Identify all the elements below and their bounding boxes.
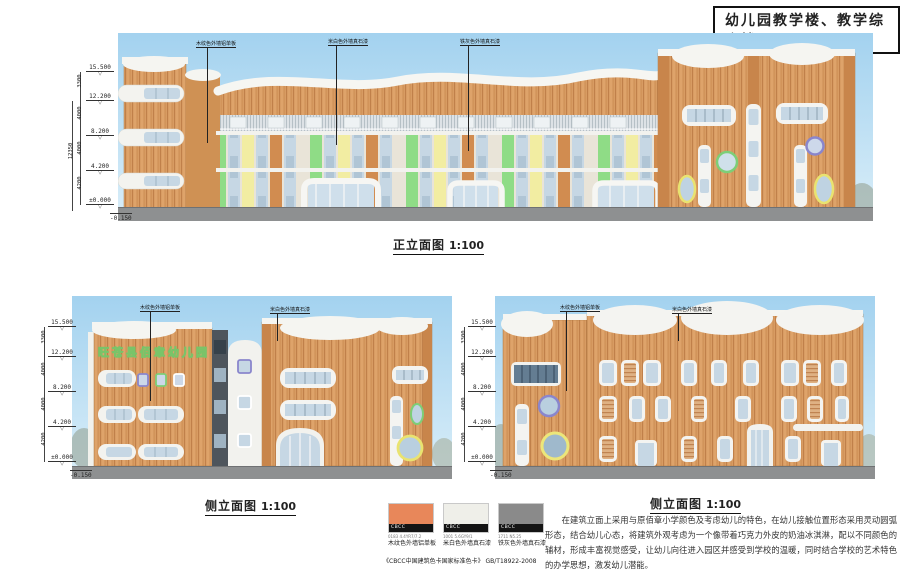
level-triangle-icon: ▽	[86, 171, 114, 175]
right-tower	[658, 43, 855, 209]
level-marker-minus: -0.150	[110, 213, 132, 222]
level-triangle-icon: ▽	[468, 392, 496, 396]
vertical-window-strip	[794, 145, 807, 207]
main-block	[587, 301, 864, 466]
stair-recess	[212, 330, 228, 466]
framed-window-purple	[238, 360, 251, 373]
side-left-caption: 侧立面图1:100	[205, 497, 296, 516]
level-marker: ±0.000▽	[468, 454, 496, 466]
framed-window-white	[238, 396, 251, 409]
level-triangle-icon: ▽	[468, 427, 496, 431]
mid-block	[216, 73, 662, 209]
framed-window-white	[238, 434, 251, 447]
level-marker: 12.200▽	[468, 349, 496, 361]
right-block	[262, 316, 432, 466]
level-triangle-icon: ▽	[48, 392, 76, 396]
vertical-window-strip	[698, 145, 711, 207]
white-tower	[228, 340, 262, 466]
snow-scallop	[593, 305, 677, 335]
material-callout: 木纹色外墙铝单板	[196, 41, 236, 48]
segment-dim: 3300	[41, 322, 47, 352]
tower-window-band	[118, 85, 184, 102]
swatch-wood: CBCC 0183 4.4YR7/7.2 木纹色外墙铝单板	[388, 503, 434, 548]
left-tower	[501, 311, 587, 466]
level-triangle-icon: ▽	[48, 462, 76, 466]
level-marker: ±0.000▽	[48, 454, 76, 466]
oval-window-yellow	[679, 176, 695, 202]
floor2-color-band	[220, 135, 658, 168]
level-marker: 4.200▽	[86, 163, 114, 175]
porthole-window-yellow	[398, 436, 422, 460]
level-triangle-icon: ▽	[86, 101, 114, 105]
swatch-white: CBCC 1001 5.6GY9/1 米白色外墙真石漆	[443, 503, 489, 548]
material-legend: CBCC 0183 4.4YR7/7.2 木纹色外墙铝单板 CBCC 1001 …	[388, 503, 558, 548]
level-triangle-icon: ▽	[48, 427, 76, 431]
side-elevation-left: 旺苍县佰章幼儿园 15.500▽ 12.200▽ 8.200▽ 4.200▽ ±…	[40, 296, 454, 500]
horizontal-window	[392, 366, 428, 384]
caption-label: 正立面图	[393, 238, 445, 252]
callout-leader	[277, 313, 278, 341]
design-description: 在建筑立面上采用与原佰章小学颜色及考虑幼儿的特色，在幼儿接触位置形态采用灵动圆弧…	[545, 513, 897, 573]
window-band	[98, 406, 136, 423]
floor-slab	[216, 131, 662, 135]
snow-cap	[501, 311, 553, 337]
horizontal-window	[280, 368, 336, 388]
segment-dim: 4200	[461, 424, 467, 454]
level-marker: 15.500▽	[86, 64, 114, 76]
snow-scallop	[776, 305, 864, 335]
level-marker: 15.500▽	[468, 319, 496, 331]
level-marker: 4.200▽	[48, 419, 76, 431]
swatch-gray: CBCC 1711 N5.25 铁灰色外墙真石漆	[498, 503, 544, 548]
window-row	[599, 360, 847, 386]
segment-dim: 4000	[41, 389, 47, 419]
caption-label: 侧立面图	[205, 499, 257, 513]
swatch-brand: CBCC	[499, 524, 543, 532]
callout-leader	[678, 313, 679, 341]
swatch-brand: CBCC	[444, 524, 488, 532]
left-tower	[118, 56, 221, 209]
level-marker-minus: -0.150	[490, 470, 512, 479]
side-left-drawing	[72, 296, 452, 496]
level-triangle-icon: ▽	[48, 327, 76, 331]
swatch-row: CBCC 0183 4.4YR7/7.2 木纹色外墙铝单板 CBCC 1001 …	[388, 503, 558, 548]
oval-window-green	[411, 404, 423, 424]
entry-strip	[747, 424, 773, 466]
arched-entry	[276, 428, 324, 466]
segment-dim: 4200	[41, 424, 47, 454]
floor-slab	[216, 168, 662, 172]
front-elevation-caption: 正立面图1:100	[393, 236, 484, 255]
level-triangle-icon: ▽	[468, 357, 496, 361]
swatch-color: CBCC	[498, 503, 544, 533]
snow-cap	[92, 321, 176, 339]
swatch-brand: CBCC	[389, 524, 433, 532]
callout-leader	[566, 311, 567, 391]
porthole-window-purple	[539, 396, 559, 416]
side-right-drawing	[495, 296, 875, 496]
level-marker: 8.200▽	[48, 384, 76, 396]
level-marker: 8.200▽	[468, 384, 496, 396]
callout-leader	[150, 311, 151, 401]
snow-cap	[672, 44, 744, 68]
entrance-frame	[304, 181, 378, 207]
ground	[118, 207, 873, 221]
level-triangle-icon: ▽	[468, 327, 496, 331]
caption-label: 侧立面图	[650, 497, 702, 511]
front-elevation-drawing	[118, 33, 873, 233]
kindergarten-sign: 旺苍县佰章幼儿园	[98, 344, 210, 360]
caption-scale: 1:100	[449, 239, 484, 252]
ground	[72, 466, 452, 479]
level-marker-minus: -0.150	[70, 470, 92, 479]
callout-leader	[207, 47, 208, 143]
level-marker: 8.200▽	[86, 128, 114, 140]
ground	[495, 466, 875, 479]
callout-leader	[336, 45, 337, 145]
swatch-color: CBCC	[443, 503, 489, 533]
caption-scale: 1:100	[261, 500, 296, 513]
framed-window-purple	[138, 374, 148, 386]
segment-dim: 4000	[77, 133, 83, 163]
level-triangle-icon: ▽	[48, 357, 76, 361]
level-marker: 12.200▽	[48, 349, 76, 361]
horizontal-window	[682, 105, 736, 126]
level-triangle-icon: ▽	[468, 462, 496, 466]
white-band	[793, 424, 863, 431]
tower-window-band	[118, 129, 184, 146]
framed-window-white	[174, 374, 184, 386]
overall-dim: 12350	[68, 136, 74, 166]
swatch-caption: 木纹色外墙铝单板	[388, 540, 434, 548]
window-band	[98, 444, 136, 460]
side-right-caption: 侧立面图1:100	[650, 495, 741, 514]
material-callout: 铁灰色外墙真石漆	[460, 39, 500, 46]
horizontal-window	[280, 400, 336, 420]
callout-leader	[468, 45, 469, 151]
window-band	[138, 406, 184, 423]
window-band	[138, 444, 184, 460]
segment-dim: 4200	[77, 168, 83, 198]
front-elevation: 15.500▽ 12.200▽ 8.200▽ 4.200▽ ±0.000▽ -0…	[70, 33, 875, 235]
material-callout: 米白色外墙真石漆	[328, 39, 368, 46]
level-marker: 4.200▽	[468, 419, 496, 431]
porthole-window-green	[717, 152, 737, 172]
swatch-caption: 米白色外墙真石漆	[443, 540, 489, 548]
material-callout: 米白色外墙真石漆	[270, 307, 310, 314]
level-marker: 12.200▽	[86, 93, 114, 105]
segment-dim: 4000	[77, 98, 83, 128]
snow-cap	[280, 316, 380, 340]
level-marker: ±0.000▽	[86, 197, 114, 209]
segment-dim: 3300	[461, 322, 467, 352]
entrance-frame	[450, 183, 502, 207]
level-triangle-icon: ▽	[86, 136, 114, 140]
segment-dim: 4000	[41, 354, 47, 384]
porthole-window-purple	[807, 138, 824, 155]
snow-cap	[769, 43, 835, 65]
porthole-window-yellow	[542, 433, 568, 459]
segment-dim: 4000	[461, 354, 467, 384]
vertical-window-strip	[746, 104, 761, 207]
dark-horizontal-window	[511, 362, 561, 386]
level-triangle-icon: ▽	[86, 72, 114, 76]
framed-window-green	[156, 374, 166, 386]
tower-window-band	[118, 173, 184, 189]
material-callout: 木纹色外墙铝单板	[140, 305, 180, 312]
side-elevation-right: 15.500▽ 12.200▽ 8.200▽ 4.200▽ ±0.000▽ -0…	[460, 296, 878, 500]
oval-window-yellow	[815, 175, 833, 203]
horizontal-window	[776, 103, 828, 124]
segment-dim: 4000	[461, 389, 467, 419]
caption-scale: 1:100	[706, 498, 741, 511]
window-band	[98, 370, 136, 387]
vertical-window-strip	[515, 404, 529, 466]
swatch-color: CBCC	[388, 503, 434, 533]
swatch-caption: 铁灰色外墙真石漆	[498, 540, 544, 548]
entrance-frame	[595, 183, 658, 207]
level-marker: 15.500▽	[48, 319, 76, 331]
level-triangle-icon: ▽	[86, 205, 114, 209]
snow-cap	[376, 317, 428, 335]
segment-dim: 3300	[77, 66, 83, 96]
